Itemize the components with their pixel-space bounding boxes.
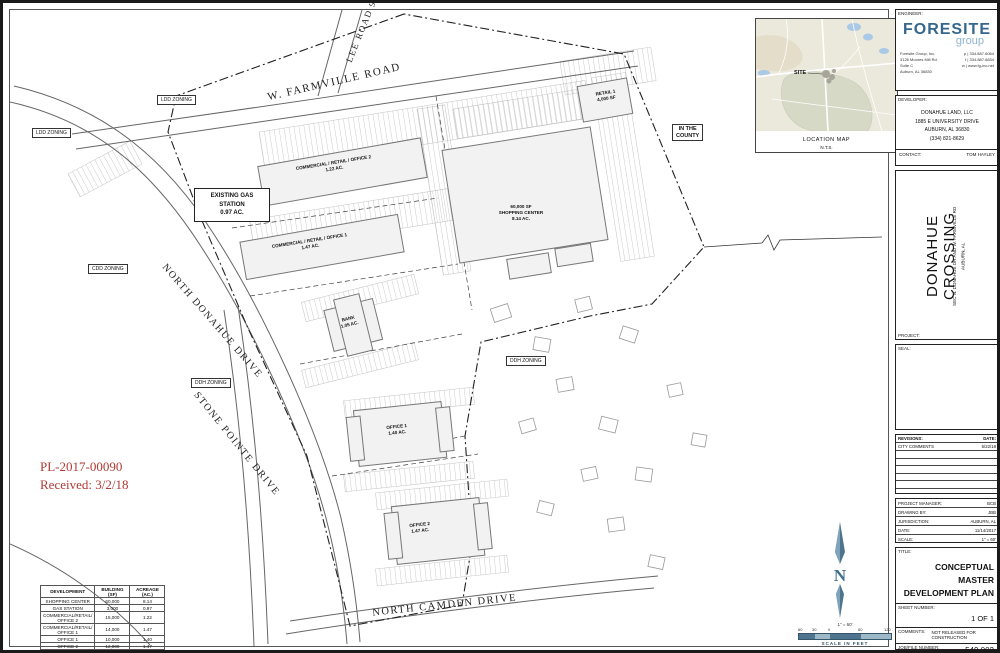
city-received-stamp: PL-2017-00090 Received: 3/2/18 — [40, 458, 128, 493]
info-label: JURISDICTION: — [898, 519, 929, 524]
contact-value: TOM HAYLEY — [966, 152, 995, 157]
location-map-nts: N.T.S. — [756, 145, 897, 151]
location-map-title: LOCATION MAP — [756, 137, 897, 145]
county-label-line1: IN THE — [676, 126, 699, 133]
info-value: AUBURN, AL — [970, 519, 996, 524]
zoning-label-cdd: CDD ZONING — [88, 264, 128, 274]
info-row: JURISDICTION:AUBURN, AL — [896, 517, 998, 526]
info-label: DATE: — [898, 528, 910, 533]
location-map-caption: LOCATION MAP N.T.S. — [756, 137, 897, 151]
sheet-number-label: SHEET NUMBER: — [896, 604, 998, 611]
info-label: DRAWING BY: — [898, 510, 927, 515]
county-label-line2: COUNTY — [676, 133, 699, 140]
revisions-label: REVISIONS: — [898, 436, 923, 441]
cell: OFFICE 2 — [41, 643, 95, 650]
firm-info: Foresite Group, Inc. 3126 Moores Mill Rd… — [896, 49, 998, 77]
table-header-row: DEVELOPMENT BUILDING (SF) ACREAGE (AC.) — [41, 586, 165, 598]
cell: 14,000 — [95, 624, 130, 636]
info-row: SCALE:1" = 60' — [896, 535, 998, 543]
project-address-line2: AUBURN, AL — [959, 183, 967, 329]
gas-station-line1: EXISTING GAS STATION — [200, 192, 264, 209]
project-address-line1: SEC N. DONAHUE DR AND W. FARMVILLE RD — [951, 183, 959, 329]
developer-info: DONAHUE LAND, LLC 1885 E UNIVERSITY DRIV… — [896, 109, 998, 143]
sheet-title-block: TITLE: CONCEPTUAL MASTER DEVELOPMENT PLA… — [895, 547, 999, 650]
stamp-received-date: Received: 3/2/18 — [40, 476, 128, 494]
col-building-sf: BUILDING (SF) — [95, 586, 130, 598]
county-label: IN THE COUNTY — [672, 124, 703, 141]
parcel-label-shopping-center: 60,000 SF SHOPPING CENTER 8.14 AC. — [466, 204, 576, 222]
revisions-block: REVISIONS: DATE: CITY COMMENTS 6/22/18 — [895, 434, 999, 494]
info-row: DRAWING BY:JBB — [896, 508, 998, 517]
scale-bar-segments — [798, 633, 892, 640]
location-map-graphic — [756, 19, 897, 131]
cell: COMMERCIAL/RETAIL/ OFFICE 1 — [41, 624, 95, 636]
project-block: DONAHUE CROSSING SEC N. DONAHUE DR AND W… — [895, 170, 999, 340]
cell: 1.47 — [130, 624, 165, 636]
cell: 1.40 — [130, 636, 165, 643]
sheet-title: CONCEPTUAL MASTER DEVELOPMENT PLAN — [896, 555, 998, 603]
plan-sheet: W. FARMVILLE ROAD LEE ROAD 91 NORTH DONA… — [0, 0, 1000, 653]
cell: 10,000 — [95, 636, 130, 643]
gas-station-line2: 0.97 AC. — [200, 209, 264, 218]
comments-value: NOT RELEASED FOR CONSTRUCTION — [928, 628, 999, 643]
shopping-line3: 8.14 AC. — [466, 216, 576, 222]
cell: OFFICE 1 — [41, 636, 95, 643]
development-summary-table: DEVELOPMENT BUILDING (SF) ACREAGE (AC.) … — [40, 585, 165, 653]
title-label: TITLE: — [896, 548, 998, 555]
tick-120: 120 — [884, 627, 891, 632]
cell: COMMERCIAL/RETAIL/ OFFICE 2 — [41, 612, 95, 624]
site-label: SITE — [794, 70, 806, 76]
engineer-block: ENGINEER: FORESITE group Foresite Group,… — [895, 9, 999, 91]
tick-60l: 60 — [798, 627, 802, 632]
revision-row-empty — [896, 481, 998, 489]
developer-city: AUBURN, AL 36830 — [896, 126, 998, 135]
table-row: SHOPPING CENTER60,0008.14 — [41, 598, 165, 605]
revision-name: CITY COMMENTS — [898, 444, 934, 449]
seal-label: SEAL: — [896, 345, 998, 352]
cell: 60,000 — [95, 598, 130, 605]
project-info-block: PROJECT MANAGER:BCB DRAWING BY:JBB JURIS… — [895, 498, 999, 543]
comments-label: COMMENTS: — [896, 628, 928, 635]
info-value: BCB — [987, 501, 996, 506]
cell: SHOPPING CENTER — [41, 598, 95, 605]
developer-street: 1885 E UNIVERSITY DRIVE — [896, 118, 998, 127]
sheet-title-line2: DEVELOPMENT PLAN — [898, 587, 994, 600]
cell: 12,000 — [95, 643, 130, 650]
table-row: COMMERCIAL/RETAIL/ OFFICE 114,0001.47 — [41, 624, 165, 636]
info-value: 1" = 60' — [982, 537, 996, 542]
cell: 1.47 — [130, 643, 165, 650]
col-development: DEVELOPMENT — [41, 586, 95, 598]
sheet-title-line1: CONCEPTUAL MASTER — [898, 561, 994, 587]
info-row: PROJECT MANAGER:BCB — [896, 499, 998, 508]
revision-row-empty — [896, 451, 998, 459]
info-row: DATE:11/14/2017 — [896, 526, 998, 535]
scale-ticks: 60 30 0 60 120 — [798, 627, 892, 633]
drawing-area: W. FARMVILLE ROAD LEE ROAD 91 NORTH DONA… — [9, 9, 889, 647]
seal-block: SEAL: — [895, 344, 999, 430]
stamp-case-number: PL-2017-00090 — [40, 458, 128, 476]
north-letter: N — [818, 566, 862, 586]
zoning-label-ddh-2: DDH ZONING — [506, 356, 546, 366]
cell: GAS STATION — [41, 605, 95, 612]
cell: 3,000 — [95, 605, 130, 612]
tick-30: 30 — [812, 627, 816, 632]
zoning-label-ddh-1: DDH ZONING — [191, 378, 231, 388]
gas-station-label: EXISTING GAS STATION 0.97 AC. — [194, 188, 270, 222]
info-label: PROJECT MANAGER: — [898, 501, 942, 506]
table-row: OFFICE 212,0001.47 — [41, 643, 165, 650]
revisions-date-label: DATE: — [983, 436, 996, 441]
revisions-header: REVISIONS: DATE: — [896, 435, 998, 443]
info-value: JBB — [988, 510, 996, 515]
revision-row-empty — [896, 466, 998, 474]
tick-0: 0 — [828, 627, 830, 632]
developer-phone: (334) 821-8629 — [896, 135, 998, 144]
firm-contact: p | 334.887.6064 f | 334.887.6834 w | ww… — [962, 51, 994, 75]
developer-label: DEVELOPER: — [896, 96, 998, 103]
scale-bar: 1" = 60' 60 30 0 60 120 SCALE IN FEET — [798, 622, 892, 646]
engineer-label: ENGINEER: — [896, 10, 998, 17]
zoning-label-ldd-1: LDD ZONING — [157, 95, 196, 105]
cell: 1.22 — [130, 612, 165, 624]
developer-block: DEVELOPER: DONAHUE LAND, LLC 1885 E UNIV… — [895, 95, 999, 166]
contact-label: CONTACT: — [899, 152, 921, 157]
firm-address: Foresite Group, Inc. 3126 Moores Mill Rd… — [900, 51, 938, 75]
table-row: COMMERCIAL/RETAIL/ OFFICE 215,0001.22 — [41, 612, 165, 624]
table-row: OFFICE 110,0001.40 — [41, 636, 165, 643]
col-acreage: ACREAGE (AC.) — [130, 586, 165, 598]
revision-date: 6/22/18 — [982, 444, 996, 449]
info-value: 11/14/2017 — [975, 528, 996, 533]
cell: 15,000 — [95, 612, 130, 624]
sheet-number: 1 OF 1 — [896, 611, 998, 627]
developer-name: DONAHUE LAND, LLC — [896, 109, 998, 118]
table-row: GAS STATION3,0000.97 — [41, 605, 165, 612]
revision-row-empty — [896, 459, 998, 467]
zoning-label-ldd-2: LDD ZONING — [32, 128, 71, 138]
project-label: PROJECT: — [896, 332, 922, 339]
firm-city: Auburn, AL 36830 — [900, 69, 938, 75]
scale-caption: SCALE IN FEET — [798, 641, 892, 646]
contact-row: CONTACT: TOM HAYLEY — [896, 149, 998, 159]
firm-web: w | www.fg-inc.net — [962, 63, 994, 69]
revision-row: CITY COMMENTS 6/22/18 — [896, 443, 998, 451]
project-address: SEC N. DONAHUE DR AND W. FARMVILLE RD AU… — [951, 183, 968, 329]
location-map: SITE LOCATION MAP N.T.S. — [755, 18, 898, 153]
tick-60r: 60 — [858, 627, 862, 632]
cell: 8.14 — [130, 598, 165, 605]
north-arrow: N — [818, 522, 862, 622]
job-number-label: JOB/FILE NUMBER: — [896, 644, 942, 651]
info-label: SCALE: — [898, 537, 913, 542]
cell: 0.97 — [130, 605, 165, 612]
revision-row-empty — [896, 474, 998, 482]
